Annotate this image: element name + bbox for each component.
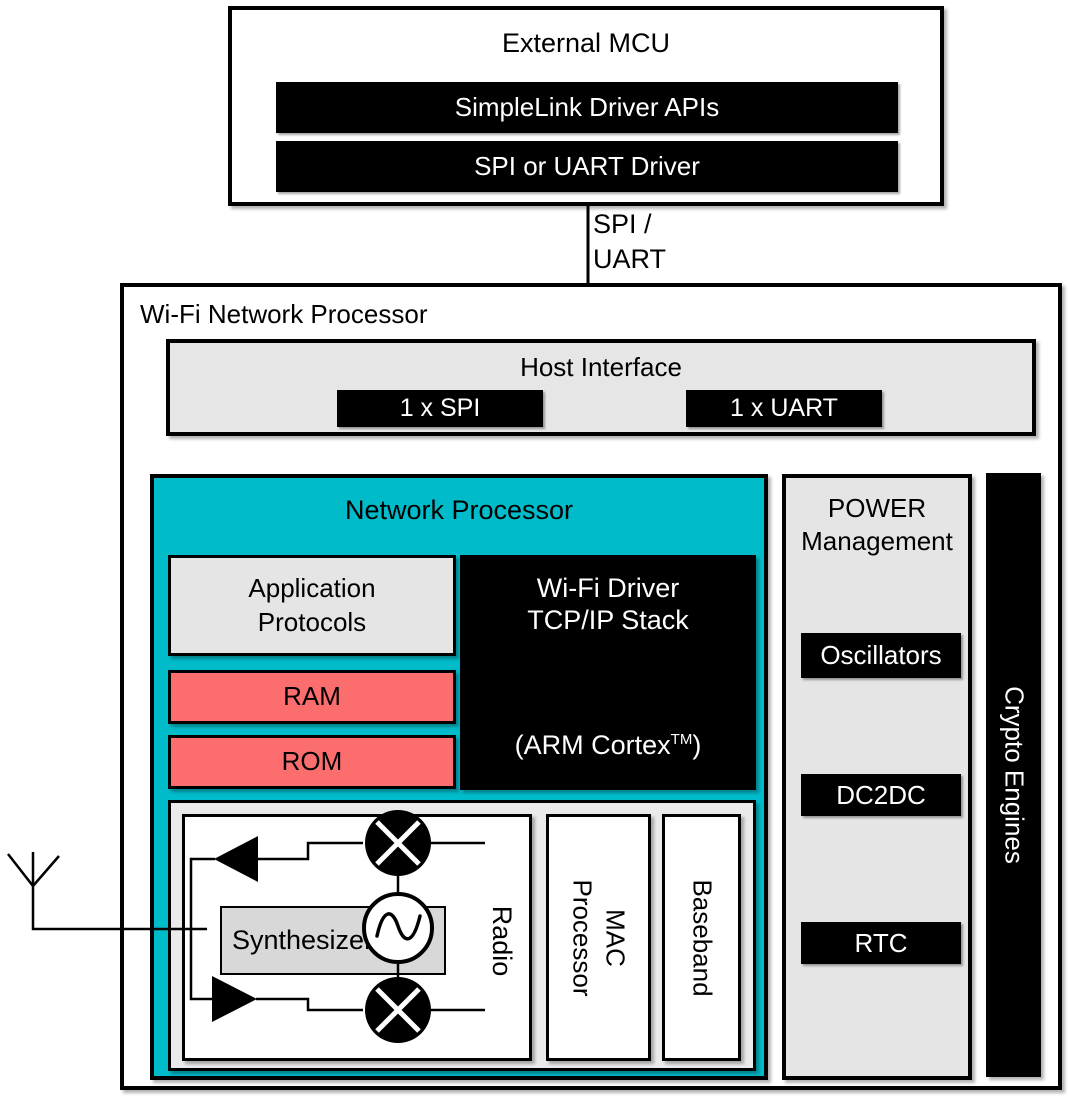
spi-port-label: 1 x SPI (400, 394, 481, 423)
wifi-driver-box: Wi-Fi Driver TCP/IP Stack (ARM CortexTM) (460, 555, 756, 790)
spi-port-bar: 1 x SPI (337, 390, 543, 427)
radio-label: Radio (484, 906, 518, 977)
mac-processor-box: MAC Processor (546, 814, 651, 1061)
synthesizer-box: Synthesizer (220, 906, 446, 975)
external-mcu-title: External MCU (232, 10, 940, 59)
simplelink-driver-apis-label: SimpleLink Driver APIs (455, 92, 719, 123)
spi-uart-driver-bar: SPI or UART Driver (276, 141, 898, 192)
host-interface-title: Host Interface (170, 343, 1032, 383)
application-protocols-line2: Protocols (258, 606, 366, 640)
power-title-line2: Management (786, 525, 968, 558)
connector-label-uart: UART (593, 244, 666, 275)
oscillators-label: Oscillators (820, 640, 941, 671)
oscillators-bar: Oscillators (801, 633, 961, 678)
uart-port-bar: 1 x UART (686, 390, 882, 427)
uart-port-label: 1 x UART (730, 394, 838, 423)
wifi-network-processor-box: Wi-Fi Network Processor Host Interface 1… (120, 283, 1062, 1090)
baseband-label: Baseband (685, 879, 718, 996)
rom-box: ROM (168, 735, 456, 789)
wifi-driver-line1: Wi-Fi Driver (463, 572, 753, 604)
mac-processor-label: MAC Processor (566, 879, 631, 996)
radio-box: Synthesizer Radio (182, 814, 532, 1061)
spi-uart-driver-label: SPI or UART Driver (474, 151, 700, 182)
ram-label: RAM (283, 680, 341, 714)
rtc-label: RTC (855, 928, 908, 959)
arm-cortex-label: (ARM CortexTM) (463, 730, 753, 761)
tm-superscript: TM (671, 731, 693, 748)
crypto-engines-bar: Crypto Engines (986, 473, 1041, 1077)
application-protocols-box: Application Protocols (168, 555, 456, 656)
wifi-network-processor-title: Wi-Fi Network Processor (140, 299, 427, 330)
connector-label-spi: SPI / (593, 209, 652, 240)
block-diagram: External MCU SimpleLink Driver APIs SPI … (0, 0, 1068, 1100)
rom-label: ROM (282, 745, 343, 779)
radio-container: Synthesizer Radio MAC Processor Baseband (168, 800, 756, 1071)
baseband-box: Baseband (662, 814, 741, 1061)
crypto-engines-label: Crypto Engines (997, 686, 1030, 864)
dc2dc-bar: DC2DC (801, 774, 961, 816)
power-management-box: POWER Management Oscillators DC2DC RTC (782, 474, 972, 1080)
simplelink-driver-apis-bar: SimpleLink Driver APIs (276, 82, 898, 133)
host-interface-box: Host Interface 1 x SPI 1 x UART (166, 339, 1036, 436)
network-processor-box: Network Processor Application Protocols … (150, 474, 768, 1080)
rtc-bar: RTC (801, 922, 961, 964)
wifi-driver-line2: TCP/IP Stack (463, 604, 753, 636)
ram-box: RAM (168, 670, 456, 724)
power-title-line1: POWER (786, 492, 968, 525)
network-processor-title: Network Processor (154, 478, 764, 526)
synthesizer-label: Synthesizer (222, 925, 373, 956)
dc2dc-label: DC2DC (836, 780, 926, 811)
application-protocols-line1: Application (248, 572, 375, 606)
external-mcu-box: External MCU SimpleLink Driver APIs SPI … (228, 6, 944, 206)
